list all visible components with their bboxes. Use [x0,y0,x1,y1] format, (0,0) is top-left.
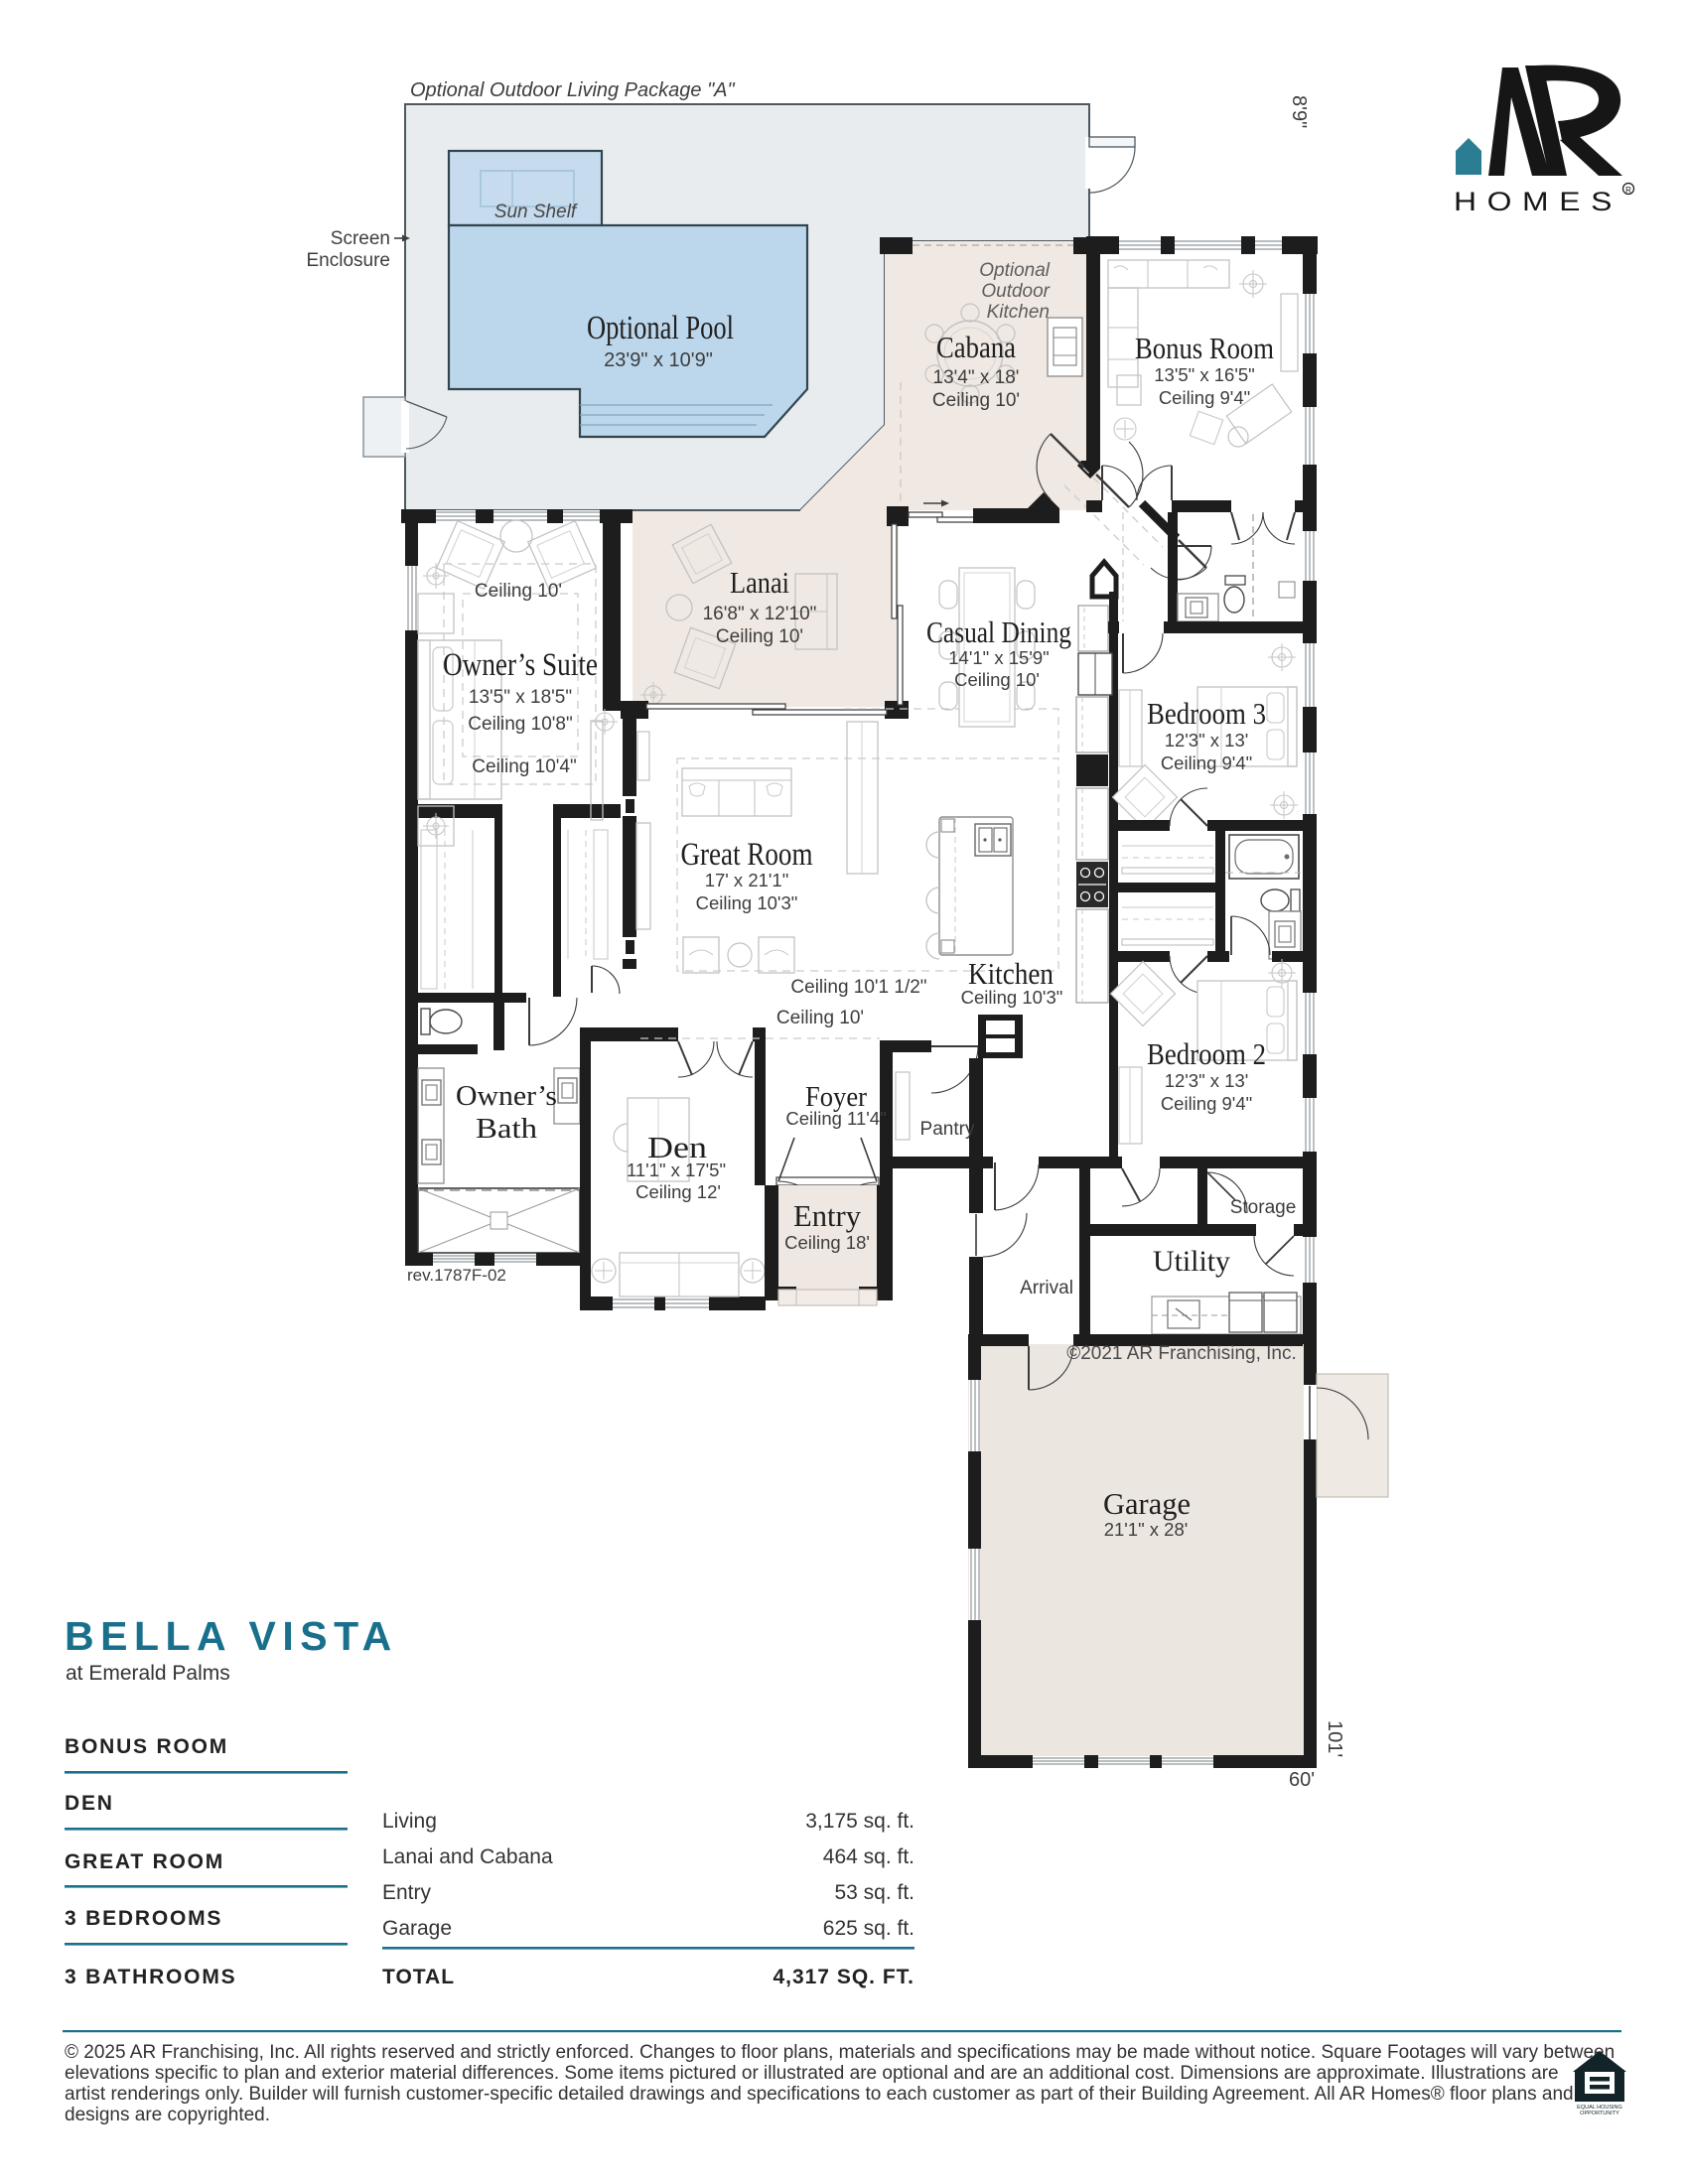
svg-text:4,317 SQ. FT.: 4,317 SQ. FT. [773,1966,914,1988]
svg-text:Lanai and Cabana: Lanai and Cabana [382,1845,553,1868]
svg-text:Ceiling 10'4": Ceiling 10'4" [472,756,576,777]
svg-text:Entry: Entry [793,1198,861,1233]
svg-text:3 BEDROOMS: 3 BEDROOMS [65,1907,222,1930]
svg-text:12'3" x 13': 12'3" x 13' [1165,730,1249,751]
svg-text:21'1" x 28': 21'1" x 28' [1104,1519,1189,1540]
svg-text:Garage: Garage [382,1917,452,1940]
svg-text:Optional Outdoor Living Packag: Optional Outdoor Living Package "A" [410,79,736,101]
svg-text:Lanai: Lanai [730,565,789,600]
svg-text:17' x 21'1": 17' x 21'1" [705,870,789,890]
svg-text:Ceiling 10'8": Ceiling 10'8" [468,714,572,735]
svg-text:625 sq. ft.: 625 sq. ft. [823,1917,914,1940]
svg-text:GREAT ROOM: GREAT ROOM [65,1850,224,1873]
svg-text:101': 101' [1324,1720,1345,1757]
svg-text:Casual Dining: Casual Dining [926,614,1071,649]
svg-text:Cabana: Cabana [936,330,1016,364]
svg-text:13'5" x 16'5": 13'5" x 16'5" [1154,364,1254,385]
svg-text:Pantry: Pantry [920,1119,975,1140]
svg-text:Ceiling 11'4": Ceiling 11'4" [785,1108,886,1129]
svg-text:14'1" x 15'9": 14'1" x 15'9" [948,647,1049,668]
svg-text:16'8" x 12'10": 16'8" x 12'10" [703,604,817,624]
svg-text:Optional Pool: Optional Pool [587,310,734,346]
svg-text:11'1" x 17'5": 11'1" x 17'5" [627,1160,726,1180]
svg-text:23'9" x 10'9": 23'9" x 10'9" [604,349,713,371]
svg-text:Ceiling 10': Ceiling 10' [932,390,1020,411]
svg-text:R: R [1625,186,1631,195]
svg-text:rev.1787F-02: rev.1787F-02 [407,1266,506,1285]
svg-text:Sun Shelf: Sun Shelf [494,202,578,222]
svg-text:designs are copyrighted.: designs are copyrighted. [65,2105,270,2125]
svg-text:Ceiling 9'4": Ceiling 9'4" [1161,752,1252,773]
svg-text:Bath: Bath [476,1113,538,1145]
svg-text:at Emerald Palms: at Emerald Palms [66,1662,230,1685]
svg-text:Ceiling 10': Ceiling 10' [776,1008,864,1028]
svg-text:BELLA VISTA: BELLA VISTA [65,1613,398,1659]
svg-text:Enclosure: Enclosure [307,250,391,271]
svg-text:Ceiling 10': Ceiling 10' [716,626,803,647]
svg-text:8'9": 8'9" [1288,95,1310,128]
svg-text:Ceiling 12': Ceiling 12' [635,1181,721,1202]
svg-text:Ceiling 10'3": Ceiling 10'3" [696,892,798,913]
svg-text:13'5" x 18'5": 13'5" x 18'5" [469,687,572,708]
svg-text:BONUS ROOM: BONUS ROOM [65,1735,228,1758]
svg-text:Arrival: Arrival [1020,1278,1073,1298]
svg-text:Ceiling 10': Ceiling 10' [954,669,1040,690]
svg-text:12'3" x 13': 12'3" x 13' [1165,1070,1249,1091]
svg-text:3,175 sq. ft.: 3,175 sq. ft. [805,1810,914,1833]
svg-text:Owner’s: Owner’s [456,1080,557,1112]
svg-text:Utility: Utility [1153,1245,1230,1278]
svg-text:© 2025 AR Franchising, Inc. Al: © 2025 AR Franchising, Inc. All rights r… [65,2042,1615,2063]
svg-text:artist renderings only. Builde: artist renderings only. Builder will fur… [65,2084,1574,2105]
svg-text:53 sq. ft.: 53 sq. ft. [834,1881,914,1904]
svg-text:60': 60' [1289,1769,1315,1791]
svg-text:Kitchen: Kitchen [987,302,1050,323]
svg-text:Ceiling 18': Ceiling 18' [784,1232,870,1253]
svg-text:Great Room: Great Room [681,837,813,873]
svg-text:Ceiling 9'4": Ceiling 9'4" [1159,387,1250,408]
svg-text:Screen: Screen [331,228,390,249]
svg-text:3 BATHROOMS: 3 BATHROOMS [65,1966,236,1988]
svg-text:OPPORTUNITY: OPPORTUNITY [1580,2111,1619,2116]
svg-text:DEN: DEN [65,1792,114,1815]
svg-text:TOTAL: TOTAL [382,1966,455,1988]
svg-text:Ceiling 10'1 1/2": Ceiling 10'1 1/2" [790,977,926,998]
svg-text:13'4" x 18': 13'4" x 18' [933,367,1020,388]
svg-text:HOMES: HOMES [1454,187,1622,216]
svg-text:Ceiling 10'3": Ceiling 10'3" [961,987,1063,1008]
svg-text:Outdoor: Outdoor [981,281,1050,302]
svg-text:Storage: Storage [1230,1197,1297,1218]
svg-text:Ceiling 10': Ceiling 10' [475,581,562,602]
svg-text:©2021 AR Franchising, Inc.: ©2021 AR Franchising, Inc. [1066,1343,1297,1364]
svg-text:elevations specific to plan an: elevations specific to plan and exterior… [65,2063,1559,2084]
svg-text:Living: Living [382,1810,437,1833]
svg-text:Garage: Garage [1103,1486,1191,1521]
svg-text:464 sq. ft.: 464 sq. ft. [823,1845,914,1868]
svg-text:Kitchen: Kitchen [968,956,1054,991]
svg-text:Bedroom 2: Bedroom 2 [1147,1036,1266,1071]
svg-text:Entry: Entry [382,1881,432,1904]
svg-text:Bonus Room: Bonus Room [1135,331,1274,365]
svg-text:Owner’s Suite: Owner’s Suite [443,647,598,683]
svg-text:Bedroom 3: Bedroom 3 [1147,696,1266,731]
svg-text:Optional: Optional [979,260,1051,281]
svg-text:Ceiling 9'4": Ceiling 9'4" [1161,1093,1252,1114]
